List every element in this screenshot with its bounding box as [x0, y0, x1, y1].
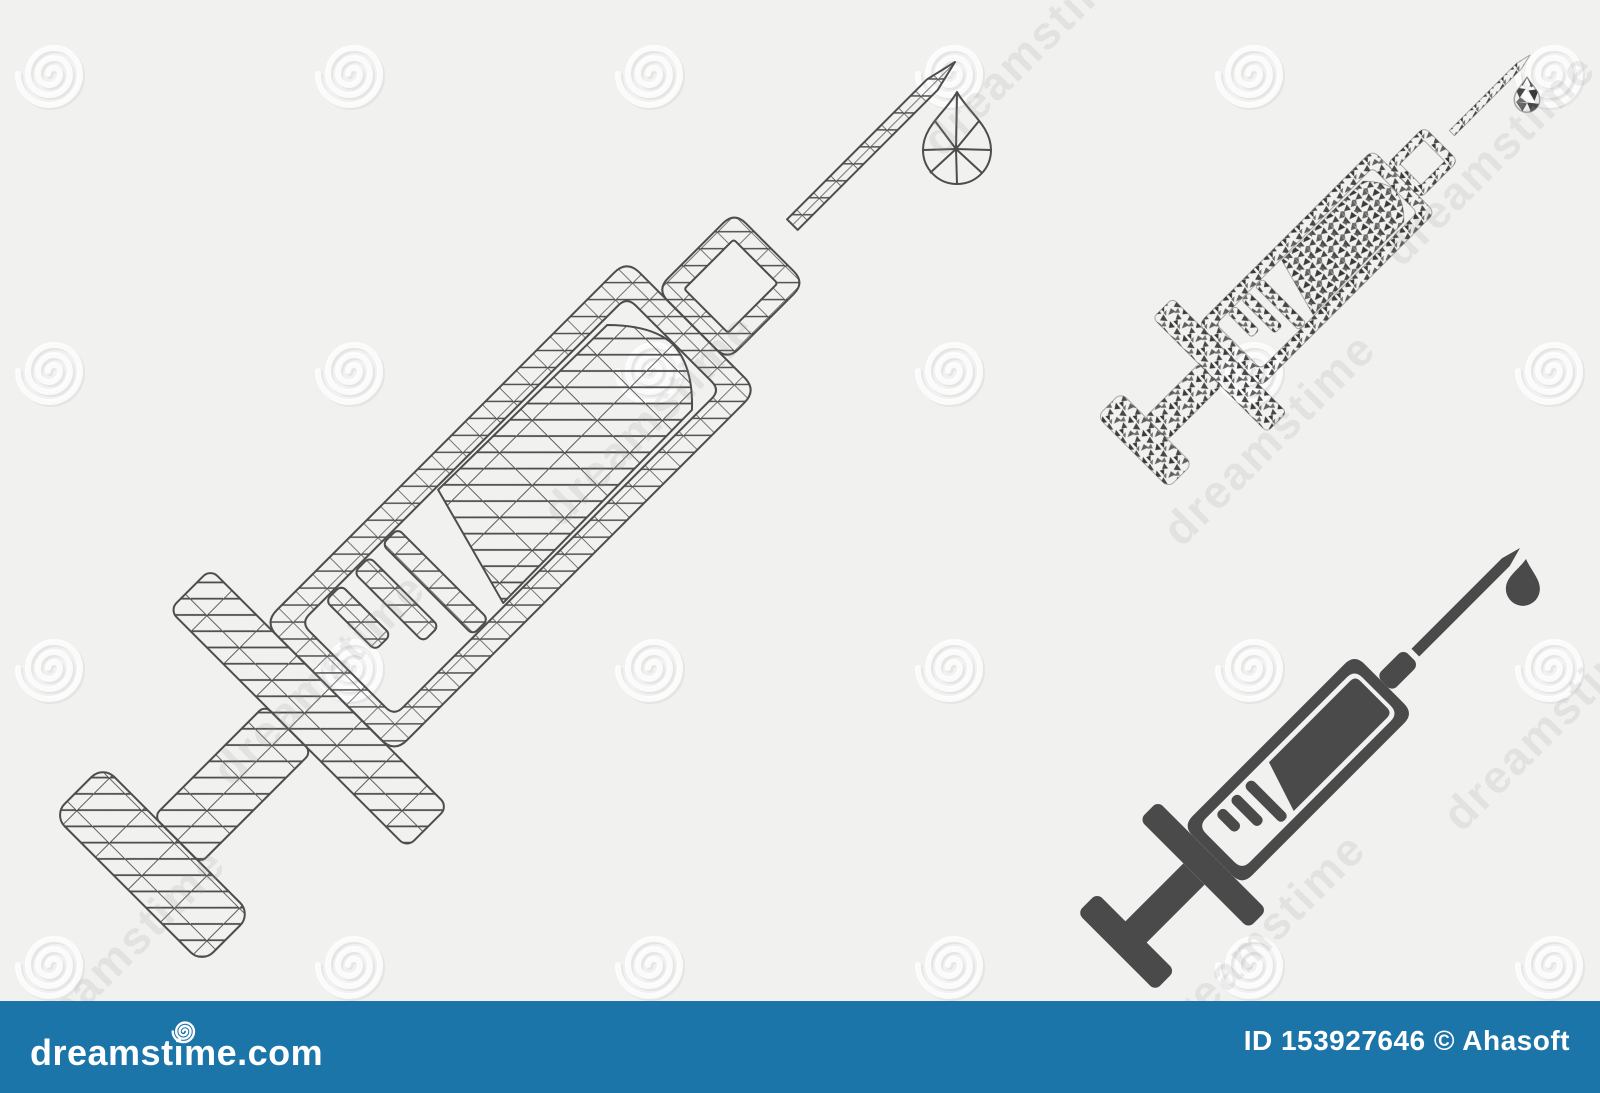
artwork-canvas: dreamstime dreamstime dreamstime dreamst…: [0, 0, 1600, 1001]
logo-spiral-icon: [170, 1019, 196, 1044]
dreamstime-logo: dreamstime.com: [30, 1035, 323, 1071]
stock-image-preview: dreamstime dreamstime dreamstime dreamst…: [0, 0, 1600, 1093]
image-credit: ID 153927646 © Ahasoft: [1244, 1025, 1570, 1057]
footer-bar: dreamstime.com ID 153927646 © Ahasoft: [0, 1001, 1600, 1093]
